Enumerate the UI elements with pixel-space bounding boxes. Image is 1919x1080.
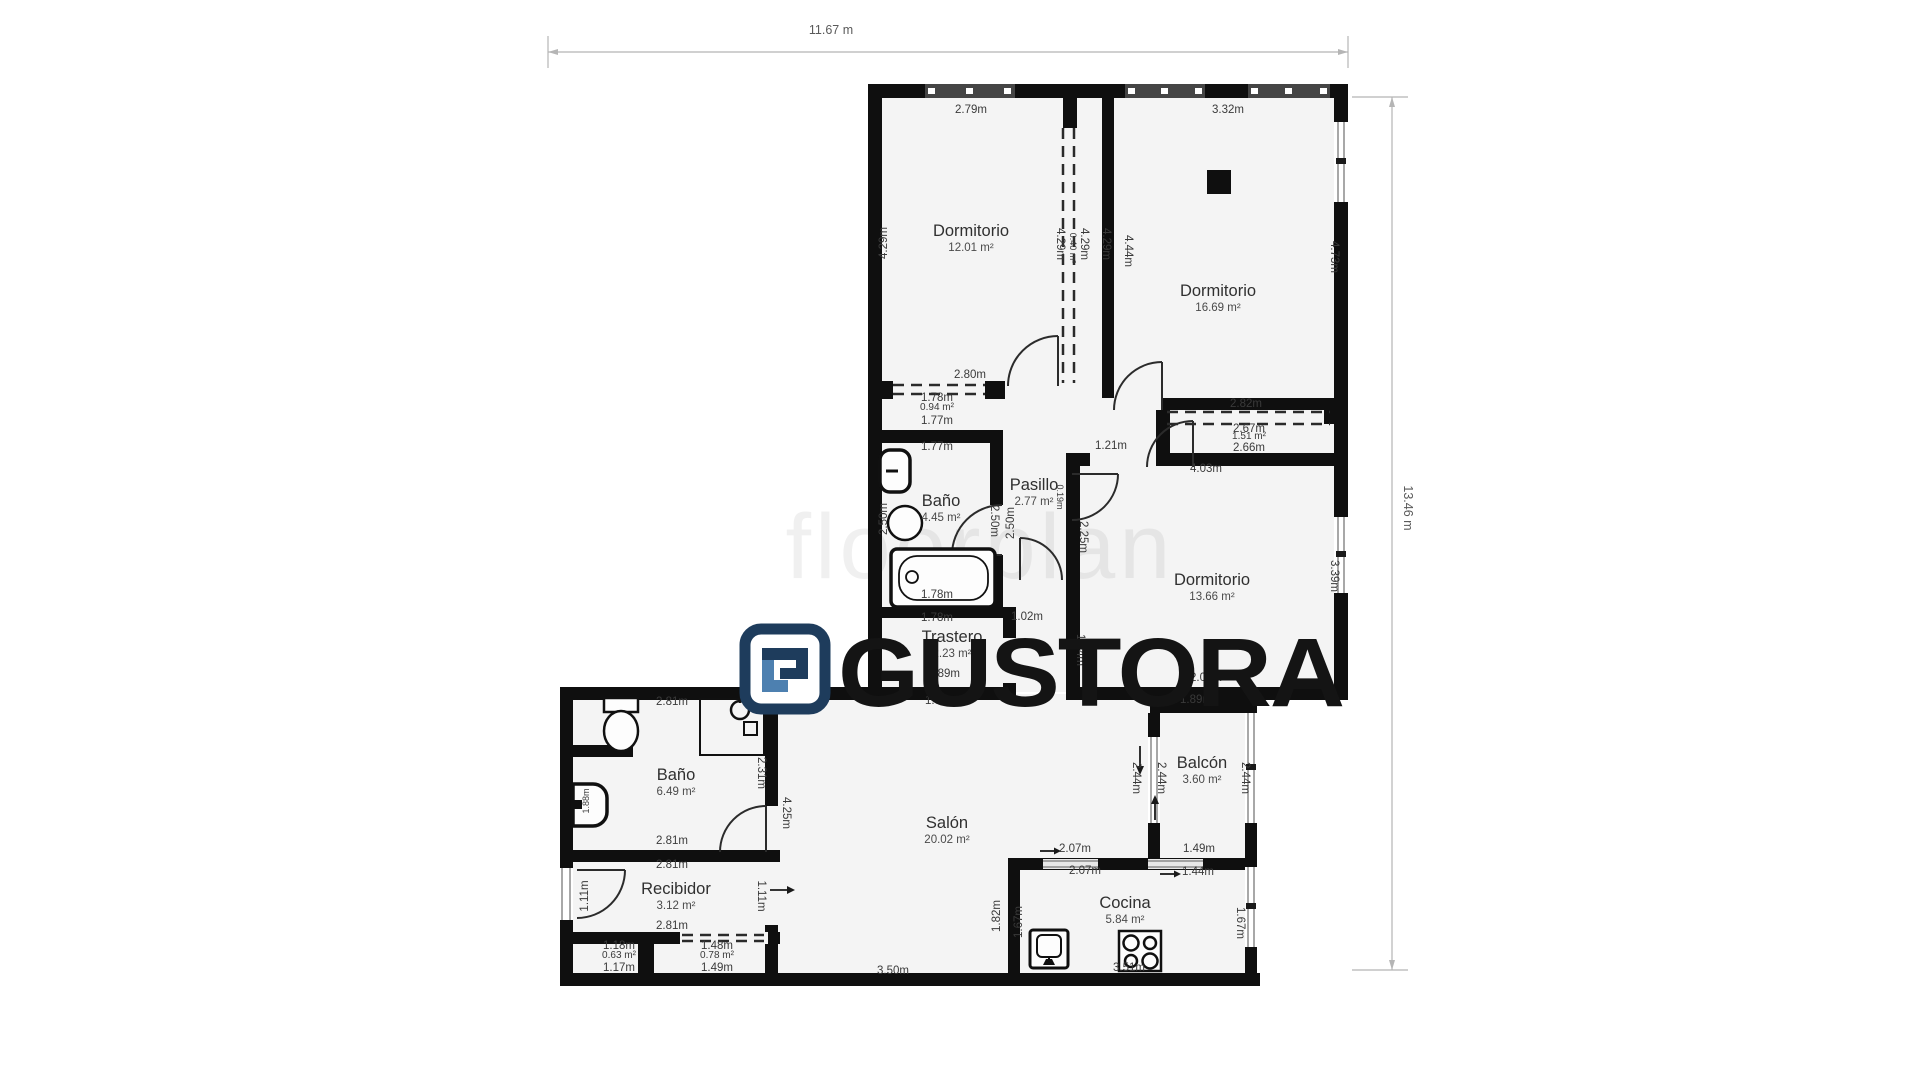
floorplan-drawing: floorplan	[0, 0, 1919, 1080]
dim-label: 1.51 m²	[1232, 431, 1267, 442]
dim-label: 4.73m	[1328, 241, 1340, 273]
dim-label: 3.39m	[1328, 560, 1340, 592]
dim-label: 1.67m	[1234, 907, 1246, 939]
room-area-label: 16.69 m²	[1195, 302, 1241, 314]
dim-label: 4.44m	[1122, 235, 1134, 267]
room-name-label: Balcón	[1177, 754, 1227, 772]
toilet-icon	[880, 450, 910, 492]
room-name-label: Dormitorio	[933, 222, 1009, 240]
dim-label: 2.79m	[955, 104, 987, 116]
window-band-top-left	[925, 84, 1015, 98]
kitchen-sink-icon	[1030, 930, 1068, 968]
window-band-top-right	[1248, 84, 1330, 98]
dim-label: 1.11m	[579, 880, 591, 911]
dim-label: 2.31m	[755, 757, 767, 789]
dim-label: 4.29m	[1078, 228, 1090, 260]
gustora-logo-icon	[745, 629, 825, 709]
dim-label: 4.29m	[1100, 228, 1112, 260]
dim-label: 3.50m	[877, 965, 909, 977]
room-area-label: 6.49 m²	[657, 786, 696, 798]
dim-label: 1.21m	[1095, 440, 1127, 452]
dim-label: 2.81m	[656, 920, 688, 932]
dim-label: 1.88m	[581, 788, 591, 813]
dim-label: 2.07m	[1059, 843, 1091, 855]
room-area-label: 5.84 m²	[1106, 914, 1145, 926]
dim-label: 2.50m	[1005, 507, 1017, 539]
dim-label: 1.44m	[1182, 866, 1214, 878]
dim-label: 2.44m	[1239, 762, 1251, 794]
window-right-dorm2	[1334, 122, 1348, 202]
room-area-label: 2.77 m²	[1015, 496, 1054, 508]
washbasin-icon	[888, 506, 922, 540]
dim-label: 1.49m	[1183, 843, 1215, 855]
dim-label: 0.63 m²	[602, 950, 637, 961]
dim-label: 0.94 m²	[920, 402, 955, 413]
room-area-label: 3.12 m²	[657, 900, 696, 912]
dim-label: 1.77m	[921, 415, 953, 427]
dim-label: 2.25m	[1077, 521, 1089, 553]
room-area-label: 13.66 m²	[1189, 591, 1235, 603]
window-band-top-mid	[1125, 84, 1205, 98]
dim-label: 2.80m	[954, 369, 986, 381]
dim-label: 4.29m	[1054, 228, 1066, 260]
dim-label: 2.50m	[988, 505, 1000, 537]
dim-label: 2.66m	[1233, 442, 1265, 454]
dim-label: 1.78m	[921, 589, 953, 601]
dim-label: 4.03m	[1190, 463, 1222, 475]
overall-width-label: 11.67 m	[809, 23, 853, 37]
room-name-label: Salón	[926, 814, 968, 832]
dim-label: 0.40 m²	[1068, 233, 1078, 264]
overall-height-label: 13.46 m	[1401, 485, 1415, 530]
dim-label: 2.81m	[656, 696, 688, 708]
dim-label: 4.29m	[878, 227, 890, 259]
dim-label: 0.19m	[1055, 484, 1065, 509]
entry-opening	[560, 868, 573, 920]
dim-label: 0.78 m²	[700, 950, 735, 961]
dim-label: 1.11m	[755, 880, 767, 911]
dim-label: 1.49m	[701, 962, 733, 974]
dim-label: 1.82m	[991, 900, 1003, 932]
room-name-label: Pasillo	[1010, 476, 1059, 494]
dim-label: 2.81m	[656, 859, 688, 871]
room-name-label: Recibidor	[641, 880, 711, 898]
gustora-logo-text: GUSTORA	[838, 618, 1343, 727]
room-name-label: Dormitorio	[1174, 571, 1250, 589]
dim-label: 1.77m	[921, 441, 953, 453]
dim-label: 2.07m	[1069, 865, 1101, 877]
dim-label: 3.32m	[1212, 104, 1244, 116]
toilet2-icon	[604, 698, 638, 751]
dim-label: 2.44m	[1130, 762, 1142, 794]
column-icon	[1207, 170, 1231, 194]
room-name-label: Baño	[922, 492, 961, 510]
room-name-label: Dormitorio	[1180, 282, 1256, 300]
room-area-label: 4.45 m²	[922, 512, 961, 524]
dim-label: 4.25m	[780, 797, 792, 829]
room-name-label: Baño	[657, 766, 696, 784]
dim-label: 1.17m	[603, 962, 635, 974]
dim-label: 2.44m	[1155, 762, 1167, 794]
dim-label: 1.67m	[1013, 906, 1025, 938]
room-name-label: Cocina	[1099, 894, 1151, 912]
dim-label: 2.81m	[656, 835, 688, 847]
dim-label: 2.82m	[1230, 398, 1262, 410]
room-area-label: 3.60 m²	[1183, 774, 1222, 786]
floorplan-page: floorplan	[0, 0, 1919, 1080]
dim-label: 2.50m	[878, 503, 890, 535]
dim-label: 3.51m	[1113, 962, 1145, 974]
room-area-label: 20.02 m²	[924, 834, 970, 846]
room-area-label: 12.01 m²	[948, 242, 994, 254]
